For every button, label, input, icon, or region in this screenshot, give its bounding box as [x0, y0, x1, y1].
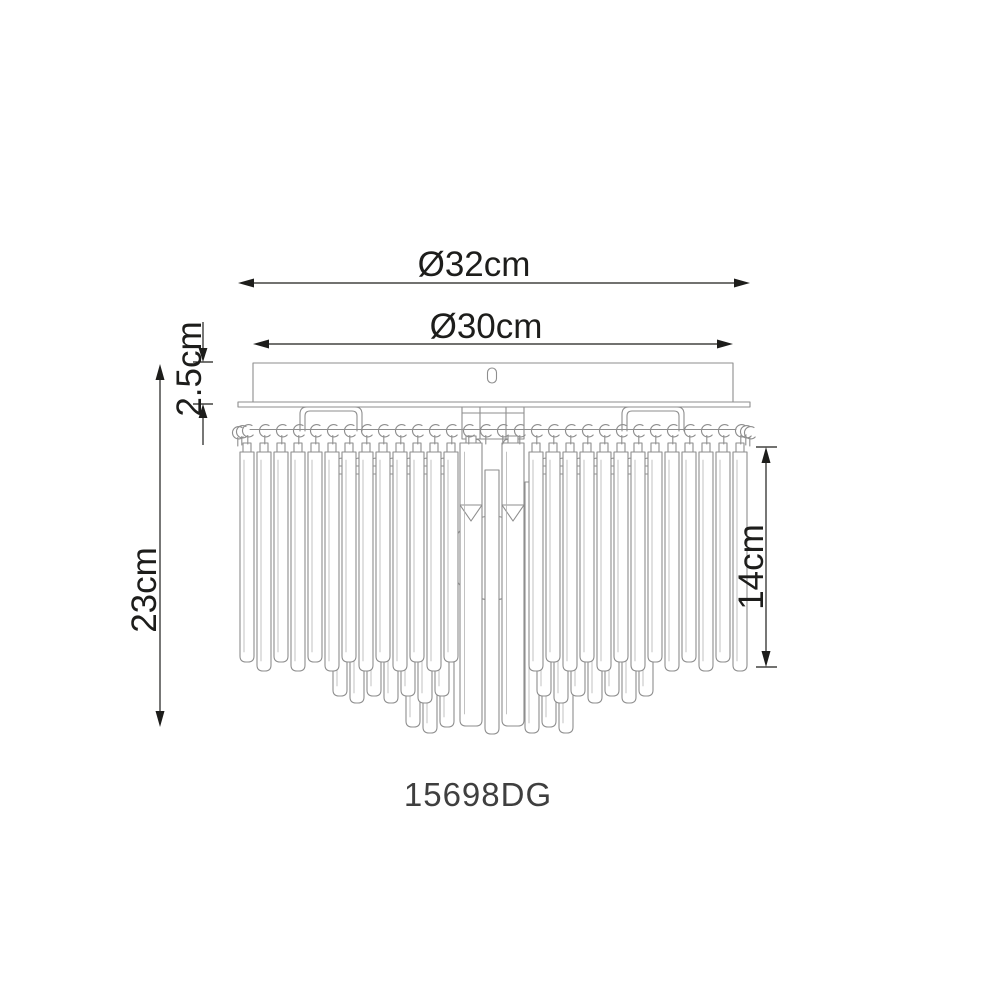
rod-clasp: [294, 443, 302, 452]
rod-clasp: [396, 443, 404, 452]
dim-outer-diameter-label: Ø32cm: [418, 245, 531, 284]
dim-total-height-label: 23cm: [125, 547, 164, 633]
model-number: 15698DG: [404, 776, 552, 813]
arrow-down-icon: [156, 711, 165, 727]
rod-clasp: [719, 443, 727, 452]
arrow-up-icon: [762, 447, 771, 463]
rod-clasp: [566, 443, 574, 452]
rod-clasp: [430, 443, 438, 452]
arrow-left-icon: [253, 340, 269, 349]
crystal-rod: [291, 452, 305, 671]
cable-slot: [488, 368, 497, 383]
dim-crystal-height-label: 14cm: [732, 524, 771, 610]
dim-outer-diameter: Ø32cm: [238, 245, 750, 288]
crystal-rod: [325, 452, 339, 671]
rod-clasp: [311, 443, 319, 452]
dim-canopy-diameter: Ø30cm: [253, 307, 733, 349]
lamp-drawing: [232, 363, 755, 734]
arrow-right-icon: [717, 340, 733, 349]
dim-canopy-height: 2.5cm: [170, 321, 213, 445]
rod-clasp: [328, 443, 336, 452]
technical-drawing-page: Ø32cm Ø30cm 2.5cm 23cm: [0, 0, 1000, 1000]
rod-clasp: [617, 443, 625, 452]
rod-clasp: [413, 443, 421, 452]
ceiling-lamp-diagram: Ø32cm Ø30cm 2.5cm 23cm: [0, 0, 1000, 1000]
crystal-rod: [308, 452, 322, 662]
rod-clasp: [736, 443, 744, 452]
rod-clasp: [379, 443, 387, 452]
dim-canopy-diameter-label: Ø30cm: [430, 307, 543, 346]
center-rod: [485, 470, 499, 734]
rod-clasp: [243, 443, 251, 452]
crystal-rod: [546, 452, 560, 662]
crystal-rod: [648, 452, 662, 662]
mounting-bracket-left: [300, 407, 362, 431]
rod-clasp: [447, 443, 455, 452]
crystal-rod: [427, 452, 441, 671]
rod-clasp: [260, 443, 268, 452]
rod-clasp: [549, 443, 557, 452]
socket-tube: [460, 443, 482, 726]
mounting-bracket-right: [622, 407, 684, 431]
arrow-up-icon: [156, 364, 165, 380]
crystal-rod: [257, 452, 271, 671]
crystal-rod: [393, 452, 407, 671]
rod-clasp: [685, 443, 693, 452]
crystal-rod: [376, 452, 390, 662]
crystal-rod: [631, 452, 645, 671]
crystal-rod: [580, 452, 594, 662]
crystal-rod: [563, 452, 577, 671]
crystal-rod: [240, 452, 254, 662]
crystal-rod: [444, 452, 458, 662]
crystal-rod: [529, 452, 543, 671]
crystal-rod: [665, 452, 679, 671]
junction-box-body: [462, 407, 524, 439]
crystal-rod: [359, 452, 373, 671]
crystal-rod: [274, 452, 288, 662]
socket-tube: [502, 443, 524, 726]
dim-canopy-height-label: 2.5cm: [170, 321, 209, 416]
bracket-outline: [305, 411, 357, 431]
arrow-right-icon: [734, 279, 750, 288]
dim-total-height: 23cm: [125, 364, 165, 727]
rod-clasp: [345, 443, 353, 452]
rod-clasp: [362, 443, 370, 452]
rod-clasp: [583, 443, 591, 452]
rod-clasp: [600, 443, 608, 452]
crystal-rod: [682, 452, 696, 662]
bracket-outline: [627, 411, 679, 431]
rod-clasp: [277, 443, 285, 452]
arrow-down-icon: [762, 651, 771, 667]
canopy-flange: [238, 402, 750, 407]
rod-clasp: [532, 443, 540, 452]
crystal-rod: [614, 452, 628, 662]
rod-clasp: [668, 443, 676, 452]
crystal-rod: [699, 452, 713, 671]
arrow-left-icon: [238, 279, 254, 288]
crystal-rod: [342, 452, 356, 662]
rod-clasp: [651, 443, 659, 452]
rod-clasp: [702, 443, 710, 452]
crystal-rod: [597, 452, 611, 671]
crystal-rod: [716, 452, 730, 662]
crystal-rod: [410, 452, 424, 662]
rod-clasp: [634, 443, 642, 452]
